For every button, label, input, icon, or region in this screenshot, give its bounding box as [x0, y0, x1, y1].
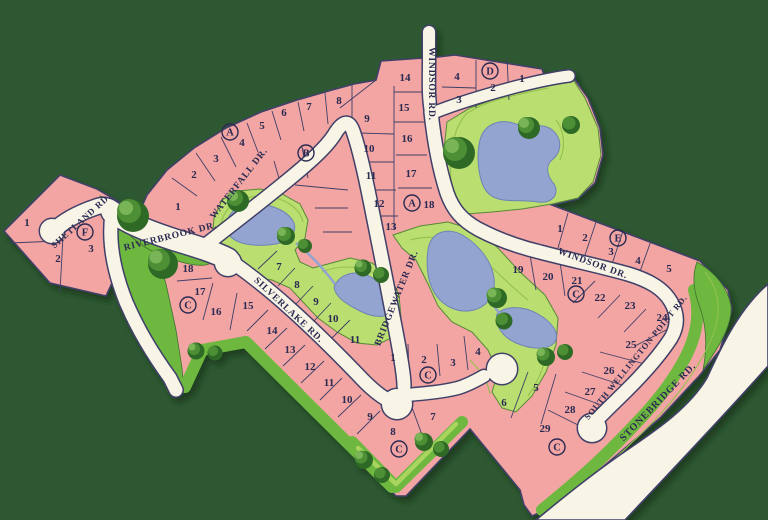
lot-number-label: 13: [386, 221, 398, 233]
lot-number-label: 4: [454, 71, 460, 83]
lot-number-label: 5: [533, 382, 539, 394]
lot-number-label: 11: [366, 170, 376, 182]
section-letter-label: F: [82, 228, 88, 239]
road-name-label: WINDSOR RD.: [426, 47, 436, 121]
section-letter-label: C: [424, 371, 432, 382]
lot-number-label: 11: [324, 377, 334, 389]
lot-number-label: 1: [557, 223, 563, 235]
tree-icon: [443, 137, 475, 169]
tree-icon: [208, 346, 223, 361]
section-letter-label: C: [572, 290, 580, 301]
lot-number-label: 23: [625, 300, 637, 312]
lot-number-label: 16: [402, 133, 414, 145]
lot-number-label: 3: [608, 246, 614, 258]
lot-number-label: 5: [666, 263, 672, 275]
lot-number-label: 28: [565, 404, 577, 416]
tree-icon: [188, 343, 205, 360]
lot-number-label: 1: [175, 201, 181, 213]
lot-number-label: 8: [390, 426, 396, 438]
tree-icon: [355, 260, 372, 277]
tree-icon: [277, 227, 295, 245]
section-letter-label: B: [302, 149, 309, 160]
section-letter-label: C: [553, 443, 561, 454]
lot-number-label: 10: [328, 313, 340, 325]
lot-number-label: 2: [191, 169, 197, 181]
plat-map: SHETLAND RD.RIVERBROOK DR.WATERFALL DR.W…: [0, 0, 768, 520]
tree-icon: [496, 313, 513, 330]
lot-number-label: 2: [582, 232, 588, 244]
lot-number-label: 13: [285, 344, 297, 356]
lot-number-label: 27: [585, 386, 597, 398]
tree-icon: [518, 117, 540, 139]
lot-number-label: 16: [211, 306, 223, 318]
lot-number-label: 9: [367, 411, 373, 423]
lot-number-label: 6: [501, 397, 507, 409]
lot-number-label: 3: [88, 243, 94, 255]
section-letter-label: D: [486, 67, 494, 78]
lot-number-label: 1: [390, 352, 396, 364]
section-letter-label: A: [408, 199, 416, 210]
lot-number-label: 22: [595, 292, 607, 304]
lot-number-label: 4: [475, 346, 481, 358]
lot-number-label: 10: [342, 394, 354, 406]
lot-number-label: 12: [374, 198, 386, 210]
plat-map-stage: SHETLAND RD.RIVERBROOK DR.WATERFALL DR.W…: [0, 0, 768, 520]
tree-icon: [373, 267, 389, 283]
tree-icon: [148, 249, 178, 279]
lot-number-label: 17: [406, 168, 418, 180]
lot-number-label: 6: [281, 107, 287, 119]
lot-number-label: 9: [313, 296, 319, 308]
tree-icon: [298, 239, 312, 253]
lot-number-label: 20: [543, 271, 555, 283]
lot-number-label: 1: [519, 73, 525, 85]
lot-number-label: 21: [572, 275, 583, 287]
lot-number-label: 2: [490, 82, 496, 94]
lot-number-label: 5: [259, 120, 265, 132]
lot-number-label: 3: [456, 94, 462, 106]
lot-number-label: 14: [400, 72, 412, 84]
lot-number-label: 7: [306, 101, 312, 113]
lot-number-label: 2: [421, 354, 427, 366]
lot-number-label: 15: [243, 300, 255, 312]
lot-number-label: 7: [430, 411, 436, 423]
section-letter-label: E: [614, 234, 621, 245]
tree-icon: [374, 467, 390, 483]
lot-number-label: 18: [424, 199, 436, 211]
lot-number-label: 17: [195, 286, 207, 298]
lot-number-label: 4: [239, 137, 245, 149]
lot-number-label: 3: [450, 357, 456, 369]
lot-number-label: 1: [24, 217, 30, 229]
lot-number-label: 10: [364, 143, 376, 155]
lot-number-label: 19: [513, 264, 525, 276]
section-letter-label: A: [226, 128, 234, 139]
tree-icon: [557, 344, 573, 360]
lot-number-label: 2: [55, 253, 61, 265]
lot-number-label: 26: [604, 365, 616, 377]
tree-icon: [562, 116, 580, 134]
section-letter-label: C: [184, 301, 192, 312]
lot-number-label: 12: [305, 361, 317, 373]
lot-number-label: 14: [267, 325, 279, 337]
lot-number-label: 8: [294, 279, 300, 291]
lot-number-label: 8: [336, 95, 342, 107]
lot-number-label: 24: [657, 312, 669, 324]
lot-number-label: 11: [350, 334, 360, 346]
lot-number-label: 4: [635, 255, 641, 267]
lot-number-label: 3: [213, 153, 219, 165]
lot-number-label: 9: [364, 113, 370, 125]
section-letter-label: C: [395, 445, 403, 456]
lot-number-label: 18: [183, 263, 195, 275]
lot-number-label: 15: [399, 102, 411, 114]
lot-number-label: 7: [276, 261, 282, 273]
lot-number-label: 29: [540, 423, 552, 435]
lot-number-label: 25: [626, 339, 638, 351]
tree-icon: [433, 441, 449, 457]
